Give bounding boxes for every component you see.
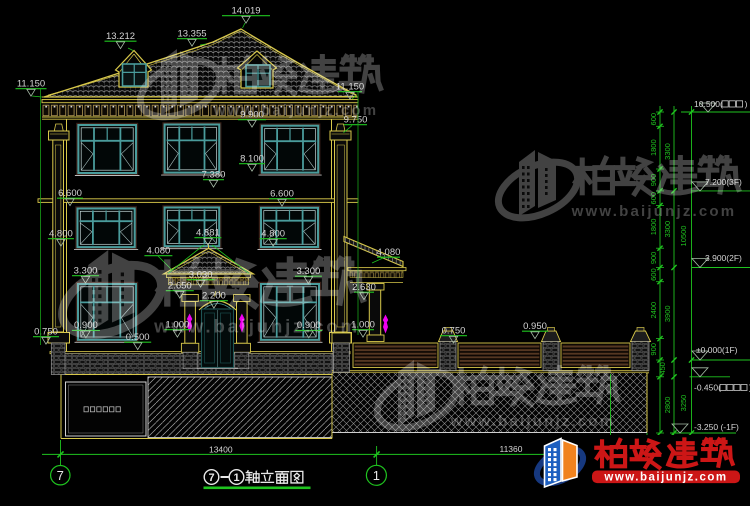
svg-text:13.212: 13.212 [106, 31, 135, 42]
svg-text:0.500: 0.500 [126, 332, 150, 343]
svg-text:3250: 3250 [679, 395, 688, 412]
svg-text:3900: 3900 [663, 305, 672, 322]
svg-text:600: 600 [649, 113, 658, 126]
svg-text:0.750: 0.750 [442, 326, 466, 337]
svg-text:2800: 2800 [663, 397, 672, 414]
svg-text:10.500(: 10.500( [694, 99, 723, 109]
svg-text:www.baijunjz.com: www.baijunjz.com [450, 413, 616, 430]
svg-text:±0.000(1F): ±0.000(1F) [696, 345, 738, 355]
svg-text:0.750: 0.750 [34, 327, 58, 338]
svg-text:10500: 10500 [679, 226, 688, 247]
svg-text:900: 900 [649, 343, 658, 356]
svg-text:1800: 1800 [649, 139, 658, 156]
svg-text:4.800: 4.800 [49, 229, 73, 240]
svg-text:6.600: 6.600 [58, 188, 82, 199]
svg-text:3300: 3300 [663, 143, 672, 160]
svg-text:1800: 1800 [649, 219, 658, 236]
svg-text:0.950: 0.950 [523, 321, 547, 332]
svg-text:11.150: 11.150 [17, 79, 45, 90]
svg-text:1: 1 [373, 468, 380, 483]
svg-text:6.600: 6.600 [270, 189, 294, 200]
svg-text:1: 1 [233, 472, 239, 484]
svg-text:900: 900 [649, 252, 658, 265]
svg-text:2400: 2400 [649, 302, 658, 319]
svg-text:4.800: 4.800 [261, 229, 285, 240]
svg-text:www.baijunjz.com: www.baijunjz.com [153, 316, 360, 337]
svg-text:-0.450(: -0.450( [694, 383, 721, 393]
svg-text:www.baijunjz.com: www.baijunjz.com [603, 472, 727, 484]
svg-text:4.080: 4.080 [377, 247, 401, 258]
svg-text:-3.250 (-1F): -3.250 (-1F) [694, 422, 739, 432]
svg-text:4.080: 4.080 [147, 246, 171, 257]
svg-text:www.baijunjz.com: www.baijunjz.com [213, 102, 379, 119]
svg-text:7.380: 7.380 [202, 170, 226, 181]
svg-text:14.019: 14.019 [231, 6, 260, 17]
svg-text:13400: 13400 [209, 445, 233, 455]
svg-text:www.baijunjz.com: www.baijunjz.com [571, 203, 737, 220]
svg-text:11360: 11360 [499, 444, 522, 454]
svg-text:7: 7 [208, 472, 214, 484]
svg-text:8.100: 8.100 [240, 154, 264, 165]
svg-text:4.881: 4.881 [196, 228, 220, 239]
svg-text:450: 450 [658, 362, 667, 375]
svg-text:3.900(2F): 3.900(2F) [705, 253, 742, 263]
svg-text:13.355: 13.355 [177, 29, 206, 40]
svg-text:7: 7 [57, 468, 64, 483]
svg-text:): ) [745, 99, 748, 109]
svg-text:600: 600 [649, 268, 658, 281]
svg-text:3300: 3300 [663, 221, 672, 238]
